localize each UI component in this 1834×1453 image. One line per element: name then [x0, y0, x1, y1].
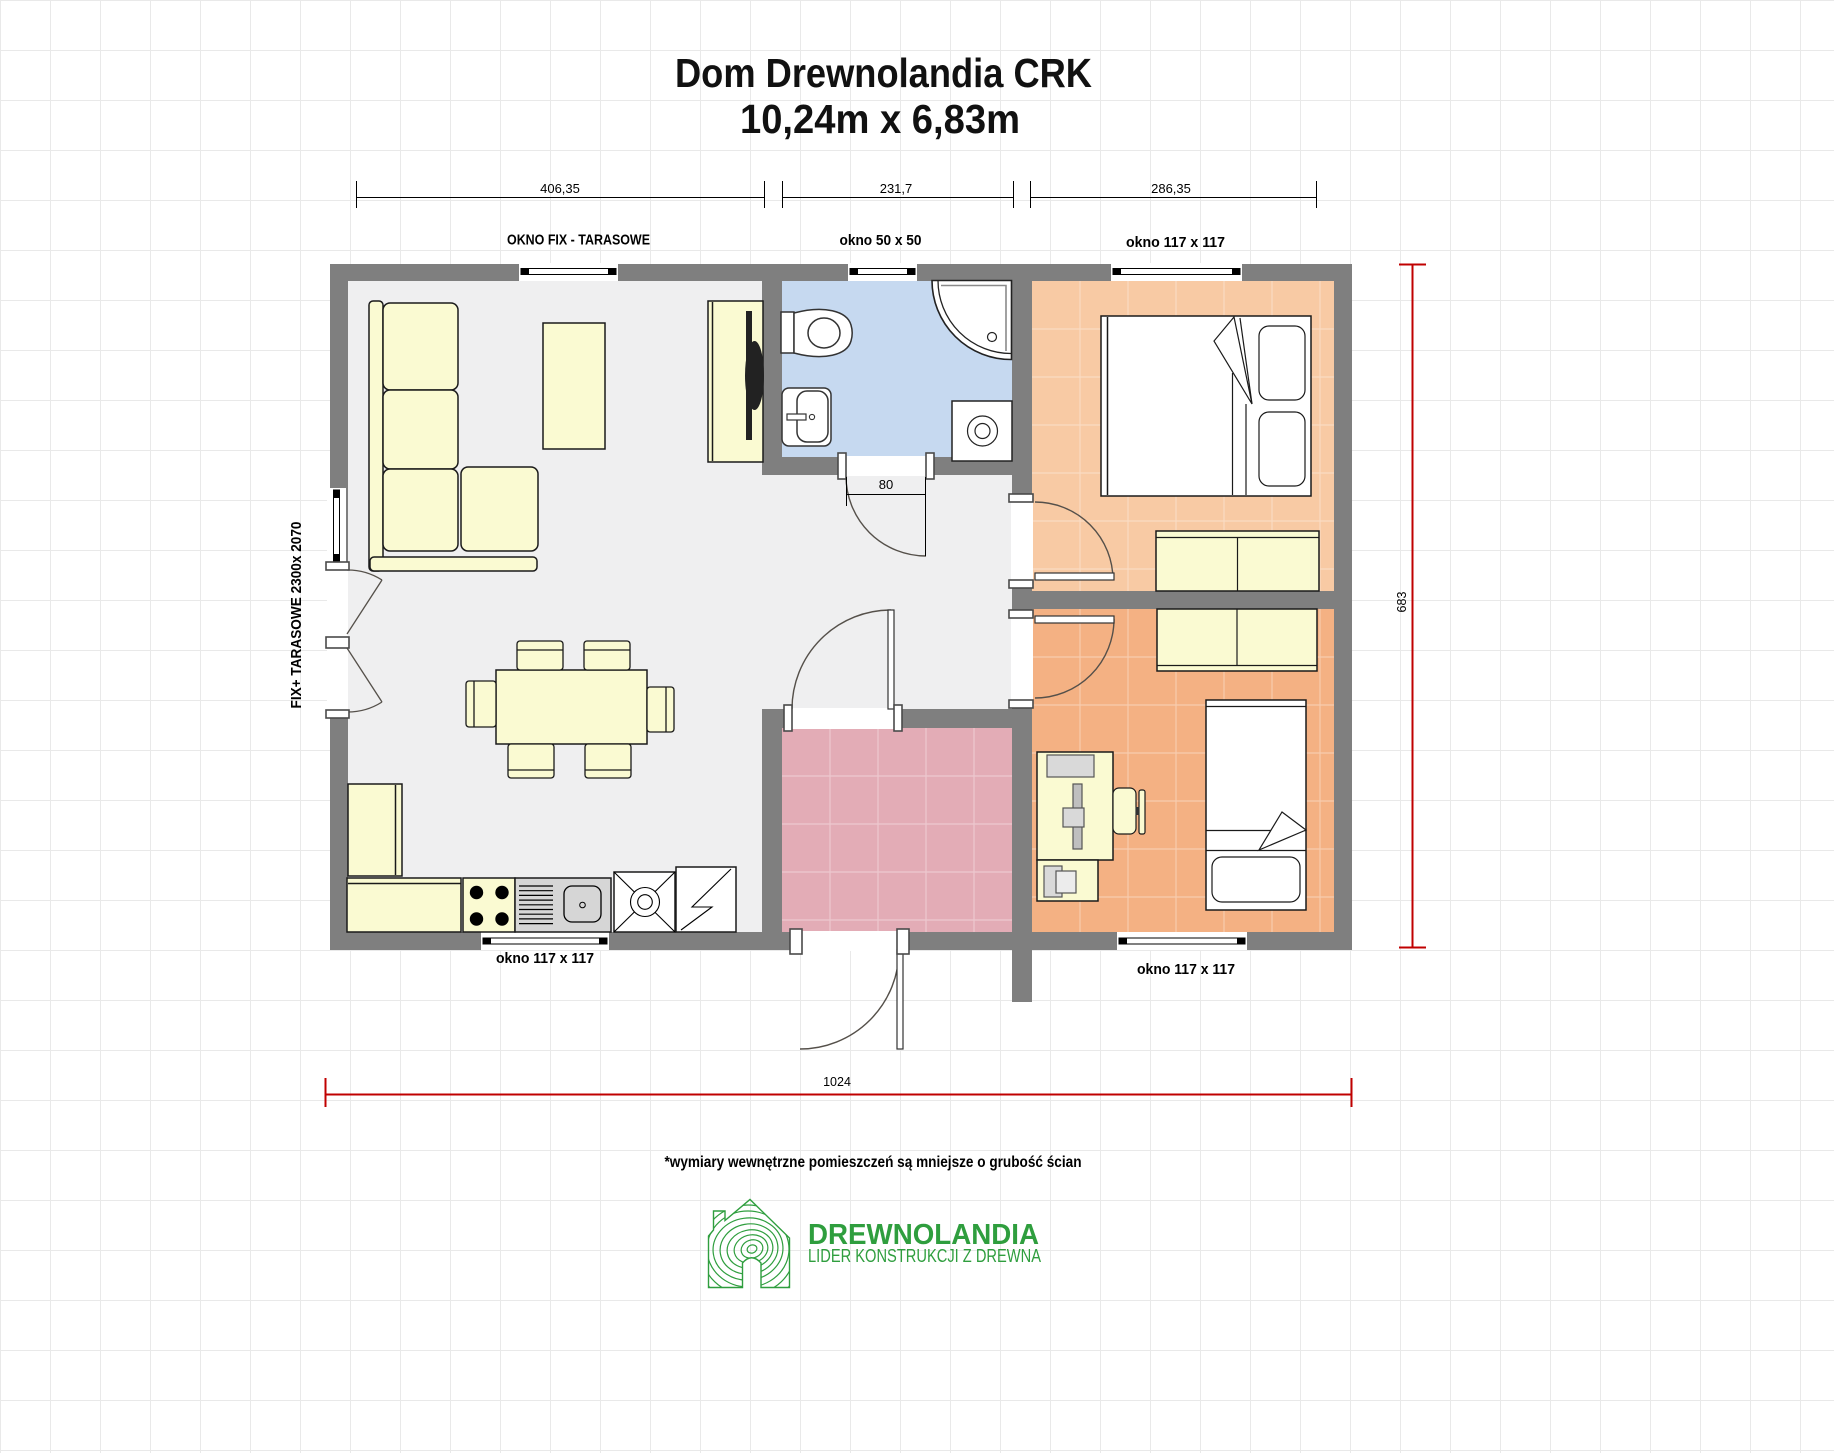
svg-text:okno 50 x 50: okno 50 x 50 [840, 232, 922, 249]
svg-text:10,24m x 6,83m: 10,24m x 6,83m [740, 96, 1020, 142]
svg-text:LIDER KONSTRUKCJI Z DREWNA: LIDER KONSTRUKCJI Z DREWNA [808, 1245, 1042, 1266]
svg-text:okno 117 x 117: okno 117 x 117 [1126, 234, 1225, 251]
svg-text:286,35: 286,35 [1151, 181, 1191, 196]
svg-text:1024: 1024 [823, 1075, 851, 1089]
svg-text:Dom Drewnolandia CRK: Dom Drewnolandia CRK [675, 50, 1092, 96]
svg-text:80: 80 [879, 477, 893, 492]
svg-text:FIX+ TARASOWE 2300x 2070: FIX+ TARASOWE 2300x 2070 [289, 522, 305, 709]
svg-text:683: 683 [1395, 592, 1409, 613]
svg-text:*wymiary wewnętrzne pomieszcze: *wymiary wewnętrzne pomieszczeń są mniej… [665, 1154, 1082, 1171]
svg-text:okno 117 x 117: okno 117 x 117 [1137, 961, 1235, 978]
svg-text:406,35: 406,35 [540, 181, 580, 196]
svg-text:okno 117 x 117: okno 117 x 117 [496, 950, 594, 967]
svg-text:231,7: 231,7 [880, 181, 913, 196]
svg-text:OKNO FIX - TARASOWE: OKNO FIX - TARASOWE [507, 232, 650, 249]
